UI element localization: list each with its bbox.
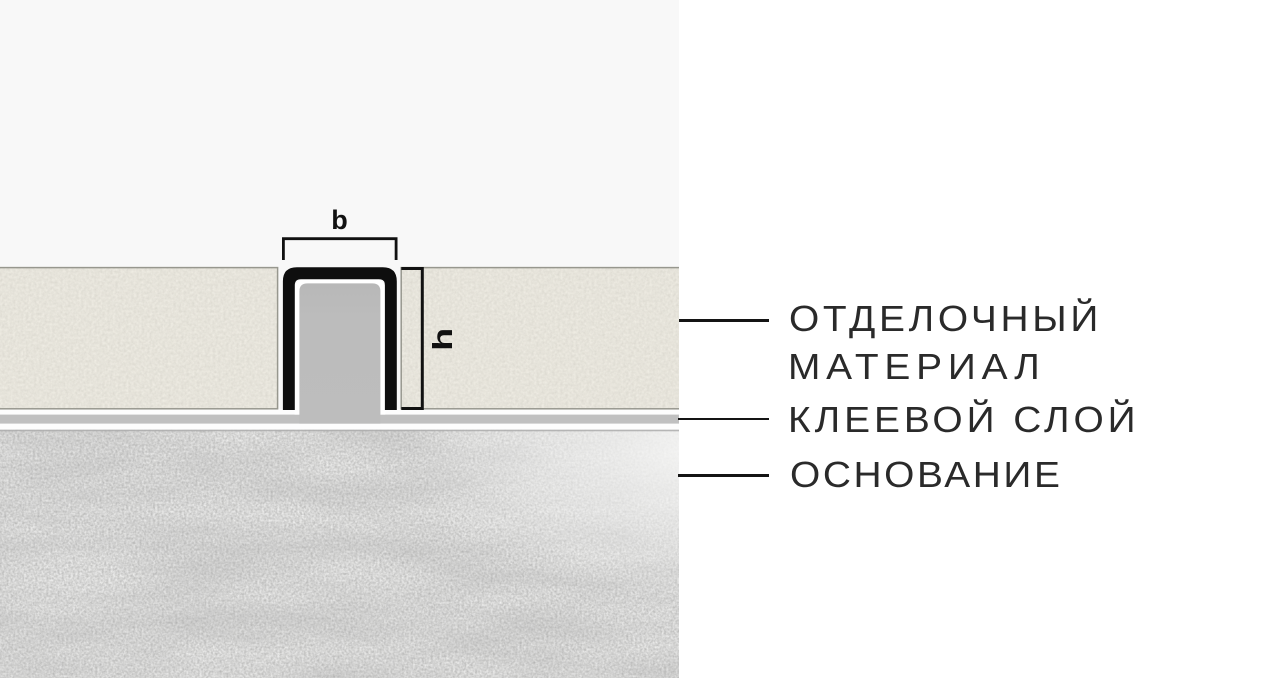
svg-text:h: h [427, 328, 458, 351]
svg-text:b: b [331, 205, 348, 235]
